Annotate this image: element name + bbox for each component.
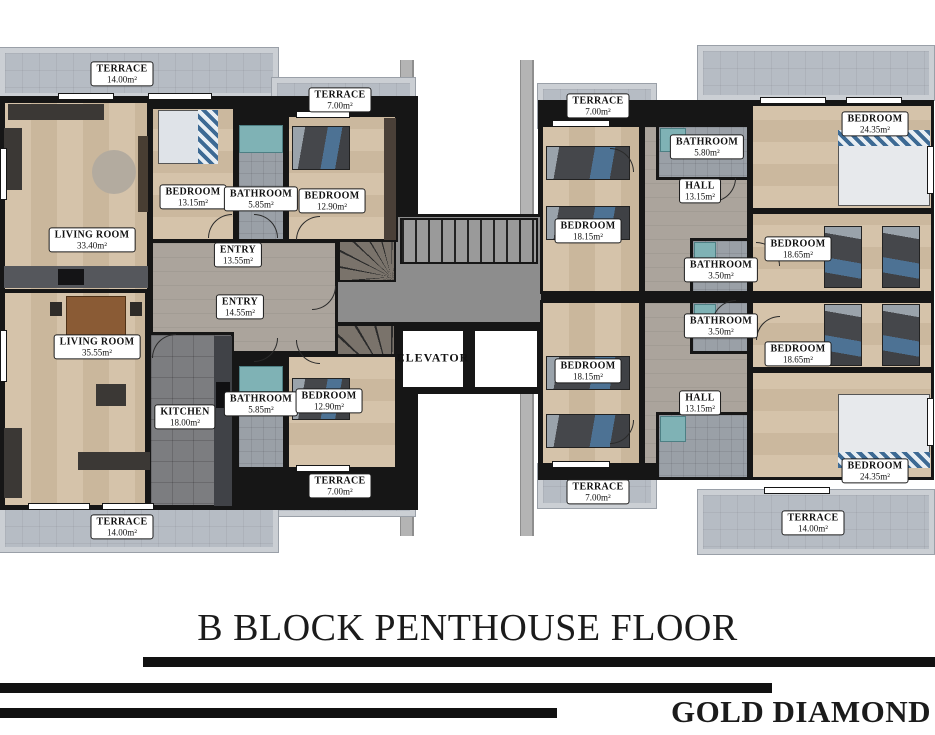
room-label-entry-13-55: ENTRY13.55m² [214, 242, 262, 267]
bed [882, 304, 920, 366]
room-label-terrace-14-bottom-left: TERRACE14.00m² [91, 514, 154, 539]
window [760, 97, 826, 104]
rug [92, 150, 136, 194]
window [846, 97, 902, 104]
sofa [78, 452, 150, 470]
sofa [4, 428, 22, 498]
stove [58, 269, 84, 285]
exterior-wall-strip [520, 390, 534, 536]
room-label-living-room-33-40: LIVING ROOM33.40m² [49, 227, 136, 252]
room-label-bathroom-5-85-bottom: BATHROOM5.85m² [224, 391, 298, 416]
room-label-bedroom-13-15: BEDROOM13.15m² [160, 184, 227, 209]
room-label-kitchen-18-00: KITCHEN18.00m² [154, 404, 215, 429]
room-label-bathroom-5-85-top: BATHROOM5.85m² [224, 186, 298, 211]
chair [50, 302, 62, 316]
shower [660, 416, 686, 442]
chair [130, 302, 142, 316]
room-label-bedroom-12-90-top: BEDROOM12.90m² [299, 188, 366, 213]
window [148, 93, 212, 100]
window [552, 461, 610, 468]
room-label-living-room-35-55: LIVING ROOM35.55m² [54, 334, 141, 359]
sofa [8, 104, 104, 120]
room-label-bathroom-3-50-bottom: BATHROOM3.50m² [684, 313, 758, 338]
shower [239, 125, 283, 153]
room-label-bedroom-18-15-bottom: BEDROOM18.15m² [555, 358, 622, 383]
shower [239, 366, 283, 392]
divider-bar-1 [143, 657, 935, 667]
kitchen-counter [214, 336, 232, 506]
room-label-terrace-7-top-left-wing: TERRACE7.00m² [309, 87, 372, 112]
room-label-hall-13-15-top: HALL13.15m² [679, 178, 721, 203]
window [58, 93, 114, 100]
service-shaft [472, 328, 540, 390]
room-label-bedroom-18-15-top: BEDROOM18.15m² [555, 218, 622, 243]
room-living-33-40 [2, 100, 150, 292]
room-label-bedroom-24-35-bottom: BEDROOM24.35m² [842, 458, 909, 483]
room-label-terrace-14-top-left: TERRACE14.00m² [91, 61, 154, 86]
window [764, 487, 830, 494]
floor-plan: TERRACE14.00m²TERRACE7.00m²BEDROOM13.15m… [0, 0, 935, 600]
room-label-terrace-7-top-right: TERRACE7.00m² [567, 93, 630, 118]
bed [882, 226, 920, 288]
tv-unit [138, 136, 148, 212]
divider-bar-2 [0, 683, 772, 693]
window [0, 330, 7, 382]
exterior-wall-strip [520, 60, 534, 216]
room-label-bedroom-12-90-bottom: BEDROOM12.90m² [296, 388, 363, 413]
bed [292, 126, 350, 170]
room-label-bathroom-3-50-top: BATHROOM3.50m² [684, 257, 758, 282]
bed-throw [198, 110, 218, 164]
plan-title: B BLOCK PENTHOUSE FLOOR [0, 606, 935, 650]
window [927, 398, 934, 446]
window [552, 120, 610, 127]
divider-bar-3 [0, 708, 557, 718]
room-label-elevator: ELEVATOR [392, 350, 475, 365]
room-label-bedroom-18-65-bottom: BEDROOM18.65m² [765, 341, 832, 366]
window [296, 465, 350, 472]
window [102, 503, 154, 510]
terrace-14-top-right [698, 46, 934, 100]
armchair [96, 384, 126, 406]
room-label-bathroom-5-80: BATHROOM5.80m² [670, 134, 744, 159]
room-label-terrace-14-bottom-right: TERRACE14.00m² [782, 510, 845, 535]
room-label-hall-13-15-bottom: HALL13.15m² [679, 390, 721, 415]
room-label-terrace-7-bottom-left-wing: TERRACE7.00m² [309, 473, 372, 498]
window [0, 148, 7, 200]
wardrobe [384, 118, 396, 240]
room-label-entry-14-55: ENTRY14.55m² [216, 294, 264, 319]
window [927, 146, 934, 194]
room-label-bedroom-18-65-top: BEDROOM18.65m² [765, 236, 832, 261]
room-label-bedroom-24-35-top: BEDROOM24.35m² [842, 111, 909, 136]
room-label-terrace-7-bottom-right: TERRACE7.00m² [567, 479, 630, 504]
straight-stair-top [400, 218, 538, 264]
brand-name: GOLD DIAMOND [671, 694, 931, 730]
window [28, 503, 90, 510]
